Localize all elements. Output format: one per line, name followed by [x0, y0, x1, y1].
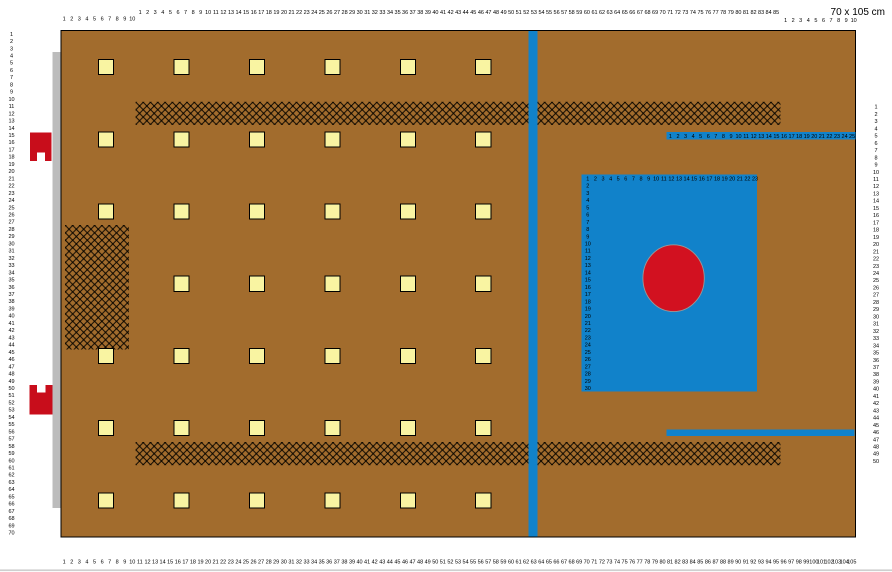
svg-text:44: 44 — [463, 10, 469, 16]
svg-text:32: 32 — [873, 329, 879, 335]
svg-text:76: 76 — [705, 10, 711, 16]
svg-text:3: 3 — [874, 119, 877, 125]
svg-text:66: 66 — [553, 559, 559, 565]
svg-text:35: 35 — [8, 278, 14, 284]
svg-text:63: 63 — [607, 10, 613, 16]
svg-text:29: 29 — [585, 379, 591, 385]
svg-text:69: 69 — [652, 10, 658, 16]
svg-text:68: 68 — [644, 10, 650, 16]
svg-text:34: 34 — [387, 10, 393, 16]
svg-text:70: 70 — [584, 559, 590, 565]
svg-text:53: 53 — [8, 408, 14, 414]
svg-text:57: 57 — [485, 559, 491, 565]
svg-text:2: 2 — [70, 559, 73, 565]
svg-text:31: 31 — [288, 559, 294, 565]
svg-text:28: 28 — [873, 300, 879, 306]
svg-text:29: 29 — [349, 10, 355, 16]
svg-text:40: 40 — [356, 559, 362, 565]
svg-text:22: 22 — [8, 184, 14, 190]
svg-text:23: 23 — [8, 191, 14, 197]
svg-text:43: 43 — [8, 335, 14, 341]
svg-text:21: 21 — [8, 176, 14, 182]
svg-text:26: 26 — [585, 357, 591, 363]
svg-text:58: 58 — [493, 559, 499, 565]
svg-text:58: 58 — [8, 444, 14, 450]
svg-text:17: 17 — [8, 148, 14, 154]
svg-text:3: 3 — [10, 46, 13, 52]
svg-text:23: 23 — [752, 177, 758, 183]
svg-text:85: 85 — [697, 559, 703, 565]
svg-text:46: 46 — [402, 559, 408, 565]
svg-text:22: 22 — [873, 257, 879, 263]
svg-text:29: 29 — [273, 559, 279, 565]
svg-text:55: 55 — [470, 559, 476, 565]
svg-text:13: 13 — [8, 119, 14, 125]
svg-text:15: 15 — [8, 133, 14, 139]
svg-text:6: 6 — [822, 18, 825, 24]
svg-text:97: 97 — [788, 559, 794, 565]
svg-text:35: 35 — [395, 10, 401, 16]
svg-text:28: 28 — [266, 559, 272, 565]
svg-text:16: 16 — [699, 177, 705, 183]
svg-text:30: 30 — [873, 314, 879, 320]
svg-text:42: 42 — [372, 559, 378, 565]
svg-text:26: 26 — [250, 559, 256, 565]
svg-text:26: 26 — [873, 285, 879, 291]
svg-text:9: 9 — [647, 177, 650, 183]
svg-text:80: 80 — [735, 10, 741, 16]
svg-text:25: 25 — [8, 205, 14, 211]
svg-text:37: 37 — [334, 559, 340, 565]
svg-text:22: 22 — [744, 177, 750, 183]
svg-text:14: 14 — [873, 199, 879, 205]
svg-text:7: 7 — [874, 148, 877, 154]
svg-text:76: 76 — [629, 559, 635, 565]
svg-text:75: 75 — [697, 10, 703, 16]
svg-text:27: 27 — [8, 220, 14, 226]
svg-text:20: 20 — [811, 134, 817, 140]
svg-text:81: 81 — [667, 559, 673, 565]
svg-text:19: 19 — [197, 559, 203, 565]
svg-text:30: 30 — [8, 241, 14, 247]
svg-text:24: 24 — [311, 10, 317, 16]
svg-text:67: 67 — [637, 10, 643, 16]
svg-text:19: 19 — [8, 162, 14, 168]
svg-text:1: 1 — [669, 134, 672, 140]
svg-text:65: 65 — [546, 559, 552, 565]
svg-text:3: 3 — [684, 134, 687, 140]
svg-text:42: 42 — [448, 10, 454, 16]
svg-text:8: 8 — [639, 177, 642, 183]
svg-text:73: 73 — [682, 10, 688, 16]
svg-text:6: 6 — [586, 213, 589, 219]
svg-text:21: 21 — [819, 134, 825, 140]
svg-text:77: 77 — [637, 559, 643, 565]
svg-text:14: 14 — [585, 270, 591, 276]
svg-text:8: 8 — [874, 155, 877, 161]
svg-text:2: 2 — [874, 112, 877, 118]
svg-text:10: 10 — [129, 17, 135, 23]
svg-text:19: 19 — [585, 307, 591, 313]
svg-text:7: 7 — [586, 220, 589, 226]
svg-text:50: 50 — [432, 559, 438, 565]
svg-text:95: 95 — [773, 559, 779, 565]
svg-text:82: 82 — [675, 559, 681, 565]
svg-text:56: 56 — [8, 429, 14, 435]
svg-text:41: 41 — [873, 394, 879, 400]
svg-text:8: 8 — [10, 82, 13, 88]
svg-text:49: 49 — [425, 559, 431, 565]
svg-text:20: 20 — [8, 169, 14, 175]
svg-text:19: 19 — [273, 10, 279, 16]
svg-text:68: 68 — [8, 516, 14, 522]
svg-text:94: 94 — [765, 559, 771, 565]
svg-text:19: 19 — [804, 134, 810, 140]
svg-text:46: 46 — [478, 10, 484, 16]
svg-text:50: 50 — [508, 10, 514, 16]
svg-text:72: 72 — [599, 559, 605, 565]
svg-text:9: 9 — [199, 10, 202, 16]
svg-text:20: 20 — [729, 177, 735, 183]
svg-text:40: 40 — [873, 387, 879, 393]
svg-text:23: 23 — [304, 10, 310, 16]
svg-text:13: 13 — [228, 10, 234, 16]
svg-text:2: 2 — [792, 18, 795, 24]
svg-text:7: 7 — [10, 75, 13, 81]
svg-text:51: 51 — [516, 10, 522, 16]
svg-text:17: 17 — [873, 220, 879, 226]
svg-text:3: 3 — [78, 17, 81, 23]
svg-text:46: 46 — [873, 430, 879, 436]
svg-text:20: 20 — [205, 559, 211, 565]
svg-text:96: 96 — [781, 559, 787, 565]
svg-text:39: 39 — [8, 307, 14, 313]
svg-text:10: 10 — [851, 18, 857, 24]
svg-text:23: 23 — [873, 264, 879, 270]
svg-text:70 x 105 cm: 70 x 105 cm — [831, 7, 885, 18]
svg-text:25: 25 — [319, 10, 325, 16]
svg-text:79: 79 — [728, 10, 734, 16]
svg-text:55: 55 — [8, 422, 14, 428]
svg-text:28: 28 — [342, 10, 348, 16]
svg-text:9: 9 — [123, 559, 126, 565]
svg-text:2: 2 — [586, 184, 589, 190]
svg-text:5: 5 — [93, 17, 96, 23]
svg-text:30: 30 — [357, 10, 363, 16]
svg-text:12: 12 — [668, 177, 674, 183]
svg-text:2: 2 — [70, 17, 73, 23]
svg-text:4: 4 — [85, 17, 88, 23]
svg-text:1: 1 — [784, 18, 787, 24]
svg-text:27: 27 — [585, 364, 591, 370]
svg-text:89: 89 — [728, 559, 734, 565]
svg-text:22: 22 — [826, 134, 832, 140]
svg-text:20: 20 — [873, 242, 879, 248]
svg-text:12: 12 — [8, 111, 14, 117]
svg-text:56: 56 — [478, 559, 484, 565]
svg-text:30: 30 — [585, 386, 591, 392]
svg-text:35: 35 — [319, 559, 325, 565]
svg-text:3: 3 — [799, 18, 802, 24]
svg-text:11: 11 — [9, 104, 15, 110]
svg-text:31: 31 — [873, 322, 879, 328]
svg-text:63: 63 — [8, 480, 14, 486]
svg-text:64: 64 — [8, 487, 14, 493]
svg-text:64: 64 — [538, 559, 544, 565]
svg-text:5: 5 — [814, 18, 817, 24]
svg-text:14: 14 — [684, 177, 690, 183]
svg-text:7: 7 — [184, 10, 187, 16]
svg-text:42: 42 — [873, 401, 879, 407]
svg-text:86: 86 — [705, 559, 711, 565]
svg-text:17: 17 — [706, 177, 712, 183]
svg-text:4: 4 — [10, 54, 13, 60]
svg-text:4: 4 — [161, 10, 164, 16]
svg-text:70: 70 — [660, 10, 666, 16]
svg-text:1: 1 — [63, 17, 66, 23]
svg-text:66: 66 — [629, 10, 635, 16]
svg-text:6: 6 — [10, 68, 13, 74]
svg-text:14: 14 — [766, 134, 772, 140]
svg-text:26: 26 — [326, 10, 332, 16]
svg-text:3: 3 — [601, 177, 604, 183]
svg-text:9: 9 — [874, 163, 877, 169]
svg-text:38: 38 — [341, 559, 347, 565]
svg-text:11: 11 — [661, 177, 667, 183]
svg-text:15: 15 — [585, 278, 591, 284]
svg-text:8: 8 — [116, 559, 119, 565]
svg-text:44: 44 — [873, 416, 879, 422]
svg-text:59: 59 — [576, 10, 582, 16]
svg-text:21: 21 — [737, 177, 743, 183]
svg-text:47: 47 — [8, 364, 14, 370]
svg-text:12: 12 — [144, 559, 150, 565]
svg-text:78: 78 — [644, 559, 650, 565]
svg-text:54: 54 — [538, 10, 544, 16]
svg-text:17: 17 — [182, 559, 188, 565]
svg-text:16: 16 — [873, 213, 879, 219]
svg-text:74: 74 — [690, 10, 696, 16]
svg-text:69: 69 — [8, 523, 14, 529]
svg-text:47: 47 — [485, 10, 491, 16]
svg-text:33: 33 — [8, 263, 14, 269]
svg-text:40: 40 — [8, 314, 14, 320]
svg-text:45: 45 — [8, 350, 14, 356]
svg-text:37: 37 — [410, 10, 416, 16]
svg-text:5: 5 — [617, 177, 620, 183]
svg-text:77: 77 — [713, 10, 719, 16]
svg-text:66: 66 — [8, 502, 14, 508]
svg-text:48: 48 — [493, 10, 499, 16]
svg-text:23: 23 — [228, 559, 234, 565]
svg-text:4: 4 — [692, 134, 695, 140]
svg-text:49: 49 — [8, 379, 14, 385]
svg-text:25: 25 — [243, 559, 249, 565]
svg-text:15: 15 — [243, 10, 249, 16]
svg-text:59: 59 — [500, 559, 506, 565]
svg-text:53: 53 — [455, 559, 461, 565]
svg-text:32: 32 — [296, 559, 302, 565]
svg-text:42: 42 — [8, 328, 14, 334]
svg-text:78: 78 — [720, 10, 726, 16]
svg-text:10: 10 — [8, 97, 14, 103]
svg-text:7: 7 — [829, 18, 832, 24]
svg-text:21: 21 — [873, 249, 879, 255]
svg-text:6: 6 — [874, 141, 877, 147]
svg-text:12: 12 — [873, 184, 879, 190]
svg-text:2: 2 — [10, 39, 13, 45]
svg-text:70: 70 — [8, 531, 14, 537]
svg-text:37: 37 — [873, 365, 879, 371]
svg-text:24: 24 — [873, 271, 879, 277]
svg-text:54: 54 — [463, 559, 469, 565]
svg-text:24: 24 — [235, 559, 241, 565]
svg-text:65: 65 — [622, 10, 628, 16]
svg-text:57: 57 — [8, 437, 14, 443]
svg-text:51: 51 — [8, 393, 14, 399]
svg-text:73: 73 — [606, 559, 612, 565]
svg-text:52: 52 — [8, 400, 14, 406]
svg-text:63: 63 — [531, 559, 537, 565]
svg-text:84: 84 — [690, 559, 696, 565]
svg-text:9: 9 — [845, 18, 848, 24]
svg-text:9: 9 — [729, 134, 732, 140]
svg-text:19: 19 — [722, 177, 728, 183]
svg-text:36: 36 — [8, 285, 14, 291]
svg-text:15: 15 — [873, 206, 879, 212]
svg-text:6: 6 — [176, 10, 179, 16]
svg-text:18: 18 — [8, 155, 14, 161]
svg-text:47: 47 — [409, 559, 415, 565]
svg-text:48: 48 — [417, 559, 423, 565]
svg-text:71: 71 — [591, 559, 597, 565]
svg-text:22: 22 — [220, 559, 226, 565]
svg-text:20: 20 — [585, 314, 591, 320]
svg-text:33: 33 — [873, 336, 879, 342]
svg-text:24: 24 — [842, 134, 848, 140]
svg-text:41: 41 — [364, 559, 370, 565]
svg-text:80: 80 — [659, 559, 665, 565]
svg-text:30: 30 — [281, 559, 287, 565]
svg-text:55: 55 — [546, 10, 552, 16]
svg-text:37: 37 — [8, 292, 14, 298]
svg-text:84: 84 — [766, 10, 772, 16]
svg-text:62: 62 — [523, 559, 529, 565]
svg-text:33: 33 — [379, 10, 385, 16]
svg-text:82: 82 — [750, 10, 756, 16]
svg-text:79: 79 — [652, 559, 658, 565]
svg-text:43: 43 — [455, 10, 461, 16]
svg-text:90: 90 — [735, 559, 741, 565]
svg-text:16: 16 — [8, 140, 14, 146]
svg-text:10: 10 — [585, 242, 591, 248]
svg-text:60: 60 — [508, 559, 514, 565]
svg-text:24: 24 — [585, 343, 591, 349]
svg-text:27: 27 — [258, 559, 264, 565]
svg-text:43: 43 — [873, 408, 879, 414]
svg-text:13: 13 — [873, 192, 879, 198]
svg-text:87: 87 — [712, 559, 718, 565]
svg-text:5: 5 — [874, 134, 877, 140]
svg-text:39: 39 — [349, 559, 355, 565]
svg-text:5: 5 — [10, 61, 13, 67]
svg-text:41: 41 — [440, 10, 446, 16]
svg-text:4: 4 — [874, 126, 877, 132]
svg-text:34: 34 — [311, 559, 317, 565]
svg-text:39: 39 — [425, 10, 431, 16]
svg-text:8: 8 — [722, 134, 725, 140]
svg-text:74: 74 — [614, 559, 620, 565]
svg-text:28: 28 — [585, 372, 591, 378]
svg-text:18: 18 — [796, 134, 802, 140]
svg-text:8: 8 — [116, 17, 119, 23]
svg-text:81: 81 — [743, 10, 749, 16]
svg-text:98: 98 — [796, 559, 802, 565]
svg-text:45: 45 — [470, 10, 476, 16]
svg-text:12: 12 — [585, 256, 591, 262]
svg-text:32: 32 — [372, 10, 378, 16]
svg-text:18: 18 — [873, 228, 879, 234]
svg-text:54: 54 — [8, 415, 14, 421]
svg-text:44: 44 — [8, 343, 14, 349]
svg-text:14: 14 — [8, 126, 14, 132]
svg-text:31: 31 — [8, 249, 14, 255]
svg-text:16: 16 — [251, 10, 257, 16]
svg-text:36: 36 — [326, 559, 332, 565]
svg-text:7: 7 — [108, 17, 111, 23]
svg-text:4: 4 — [609, 177, 612, 183]
svg-text:24: 24 — [8, 198, 14, 204]
svg-text:18: 18 — [190, 559, 196, 565]
svg-text:48: 48 — [873, 445, 879, 451]
svg-text:13: 13 — [676, 177, 682, 183]
svg-text:11: 11 — [873, 177, 879, 183]
svg-text:26: 26 — [8, 213, 14, 219]
svg-text:13: 13 — [152, 559, 158, 565]
svg-text:1: 1 — [63, 559, 66, 565]
svg-text:35: 35 — [873, 351, 879, 357]
svg-text:38: 38 — [417, 10, 423, 16]
svg-text:2: 2 — [594, 177, 597, 183]
svg-text:9: 9 — [10, 90, 13, 96]
svg-text:1: 1 — [10, 32, 13, 38]
svg-text:9: 9 — [123, 17, 126, 23]
svg-text:19: 19 — [873, 235, 879, 241]
svg-text:65: 65 — [8, 494, 14, 500]
svg-text:3: 3 — [586, 191, 589, 197]
svg-text:10: 10 — [129, 559, 135, 565]
svg-text:64: 64 — [614, 10, 620, 16]
svg-text:46: 46 — [8, 357, 14, 363]
svg-text:3: 3 — [78, 559, 81, 565]
svg-text:61: 61 — [8, 466, 14, 472]
svg-text:23: 23 — [585, 336, 591, 342]
svg-text:72: 72 — [675, 10, 681, 16]
svg-text:5: 5 — [169, 10, 172, 16]
svg-text:5: 5 — [699, 134, 702, 140]
svg-text:21: 21 — [585, 321, 591, 327]
svg-text:16: 16 — [585, 285, 591, 291]
svg-text:18: 18 — [585, 299, 591, 305]
svg-text:13: 13 — [585, 263, 591, 269]
svg-text:25: 25 — [849, 134, 855, 140]
svg-text:12: 12 — [751, 134, 757, 140]
svg-text:18: 18 — [266, 10, 272, 16]
svg-text:16: 16 — [781, 134, 787, 140]
svg-text:49: 49 — [873, 452, 879, 458]
svg-text:45: 45 — [873, 423, 879, 429]
svg-text:38: 38 — [8, 299, 14, 305]
